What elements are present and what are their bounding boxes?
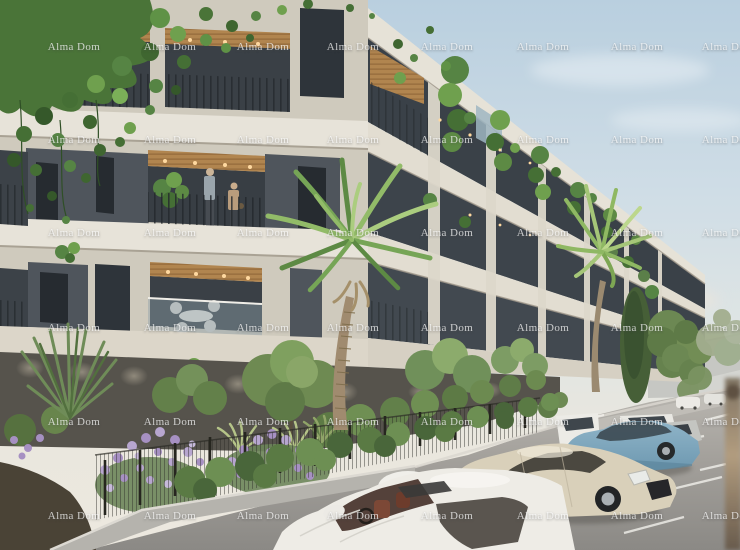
window bbox=[300, 8, 344, 98]
window bbox=[95, 264, 130, 332]
railing bbox=[165, 74, 290, 112]
window bbox=[40, 272, 68, 324]
window bbox=[96, 156, 114, 214]
property-render-image: Alma DomAlma DomAlma DomAlma DomAlma Dom… bbox=[0, 0, 740, 550]
foreground-blur bbox=[725, 378, 740, 550]
scene-svg bbox=[0, 0, 740, 550]
